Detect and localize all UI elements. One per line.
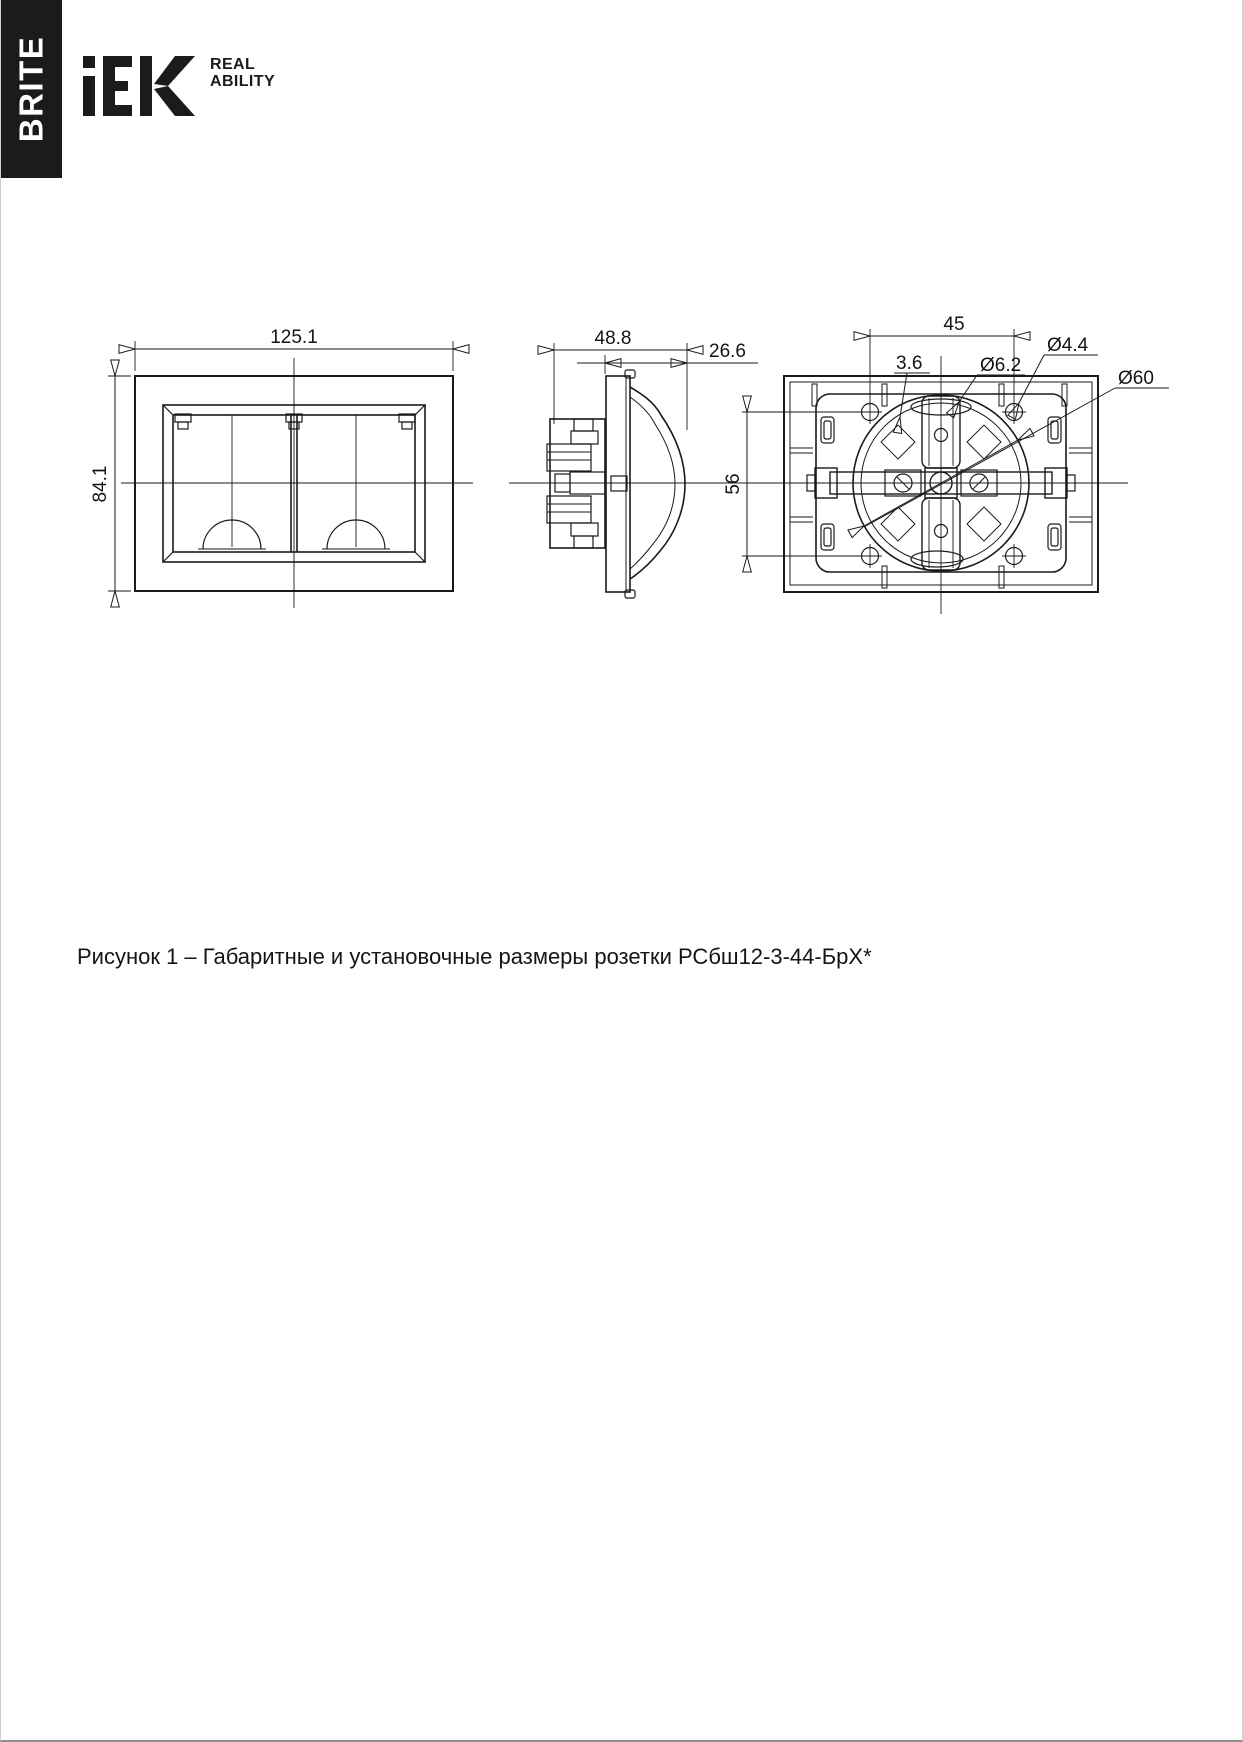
dim-label-side-protrusion: 26.6 <box>709 341 746 362</box>
figure-caption: Рисунок 1 – Габаритные и установочные ра… <box>77 944 1177 970</box>
screw-hole-bottom-right <box>1002 544 1026 568</box>
side-view-drawing <box>509 370 713 598</box>
technical-drawing: 125.1 84.1 <box>1 0 1243 1742</box>
front-view-drawing <box>121 358 473 608</box>
screw-hole-bottom-left <box>858 544 882 568</box>
dim-label-oval-hole: Ø6.2 <box>980 355 1021 376</box>
back-view-drawing <box>701 356 1128 614</box>
document-page: BRITE IEK REAL ABILITY <box>0 0 1243 1742</box>
screw-hole-top-right <box>1002 400 1026 424</box>
dim-label-front-height: 84.1 <box>90 466 111 503</box>
dim-label-mount-circle: Ø60 <box>1118 368 1154 389</box>
dim-label-claw-span: 56 <box>723 473 744 494</box>
dim-label-screw-hole: Ø4.4 <box>1047 335 1089 356</box>
dim-label-side-depth: 48.8 <box>595 328 632 349</box>
side-view-dimensions: 48.8 26.6 <box>554 328 758 430</box>
dim-label-hole-spacing: 45 <box>943 314 964 335</box>
dim-label-slot-width: 3.6 <box>896 353 922 374</box>
dim-label-front-width: 125.1 <box>270 327 318 348</box>
